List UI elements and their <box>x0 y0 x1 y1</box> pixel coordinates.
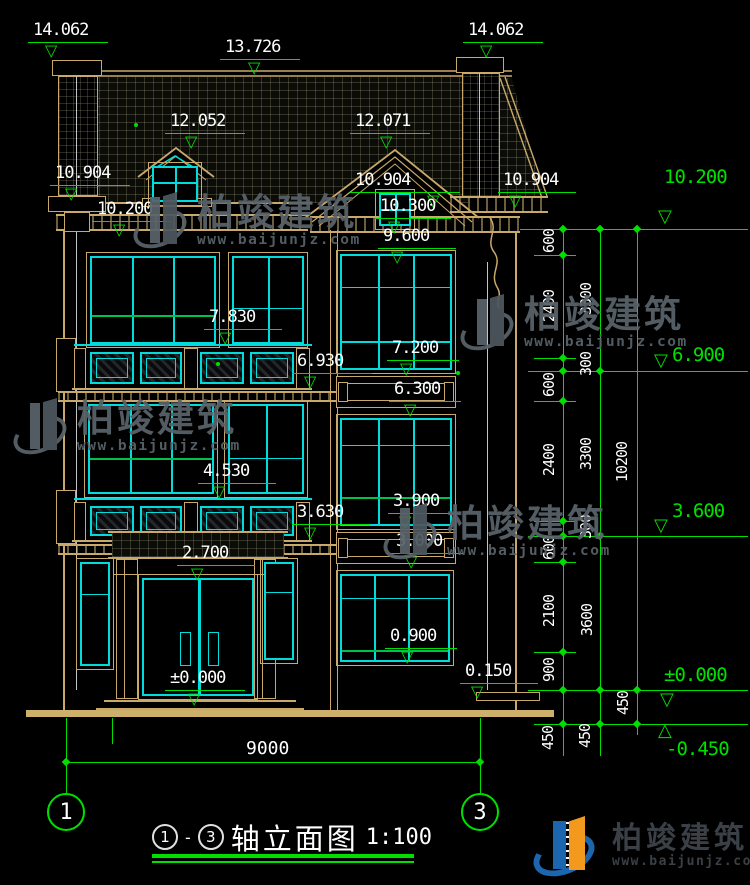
level-mark: 0.150▽ <box>465 661 511 681</box>
dim-value: 3600 <box>578 585 596 655</box>
level-mark: 10.904▽ <box>503 170 558 190</box>
dim-value: 900 <box>540 635 558 705</box>
level-mark: 0.900▽ <box>390 626 436 646</box>
watermark: 柏竣建筑www.baijunjz.com <box>135 192 361 250</box>
axis-bubble-1: 1 <box>47 793 85 831</box>
dim-value: 450 <box>576 701 594 771</box>
level-mark: 12.052▽ <box>170 111 225 131</box>
wall-left-edge <box>63 230 65 712</box>
door-handle-left <box>180 632 191 666</box>
dim-value: 3300 <box>577 419 595 489</box>
f3-window-mid <box>232 256 304 344</box>
wing-base-step <box>476 692 540 701</box>
level-mark: 6.930▽ <box>297 351 343 371</box>
elevation-mark: 3.600 <box>672 500 724 523</box>
level-mark: 12.071▽ <box>355 111 410 131</box>
level-mark: ±0.000▽ <box>170 668 225 688</box>
watermark-logo-icon <box>385 503 439 561</box>
level-mark: 4.530▽ <box>203 461 249 481</box>
level-mark: 7.830▽ <box>209 307 255 327</box>
watermark-logo-icon <box>462 294 516 352</box>
dim-value: 2400 <box>540 425 558 495</box>
title-scale: 1:100 <box>366 825 432 850</box>
watermark-logo-icon <box>15 398 69 456</box>
snap-dot <box>216 362 220 366</box>
snap-dot <box>134 123 138 127</box>
f3-window-left <box>90 256 216 344</box>
level-mark: 2.700▽ <box>182 543 228 563</box>
level-mark: 10.904▽ <box>355 170 410 190</box>
level-mark: 3.630▽ <box>297 502 343 522</box>
overall-width-dim: 9000 <box>246 738 289 759</box>
overall-width-dim-line <box>66 762 480 763</box>
dim-value: 600 <box>540 350 558 420</box>
elevation-mark: -0.450 <box>666 738 729 761</box>
level-mark: 13.726▽ <box>225 37 280 57</box>
snap-dot <box>456 371 460 375</box>
axis-bubble-3: 3 <box>461 793 499 831</box>
drawing-title: 1 - 3 轴立面图 1:100 <box>152 816 432 858</box>
level-mark: 9.600▽ <box>383 226 429 246</box>
level-mark: 10.904▽ <box>55 163 110 183</box>
watermark: 柏竣建筑www.baijunjz.com <box>462 294 688 352</box>
level-mark: 7.200▽ <box>392 338 438 358</box>
f1-window-mid-narrow <box>264 562 294 660</box>
level-mark: 14.062▽ <box>33 20 88 40</box>
f1-window-left-narrow <box>80 562 110 666</box>
dim-value: 450 <box>614 668 632 738</box>
watermark: 柏竣建筑www.baijunjz.com <box>15 398 241 456</box>
title-axis-start: 1 <box>152 824 178 850</box>
dim-value: 600 <box>540 206 558 276</box>
level-mark: 10.300▽ <box>380 196 435 216</box>
title-text: 轴立面图 <box>231 816 359 858</box>
dim-value: 10200 <box>613 427 631 497</box>
elevation-mark: 10.200 <box>664 166 727 189</box>
ground-line <box>26 710 554 717</box>
cad-elevation-drawing: 14.062▽ 13.726▽ 14.062▽ 12.052▽ 12.071▽ … <box>0 0 750 885</box>
door-pilaster-left <box>116 559 138 699</box>
elevation-mark: ±0.000 <box>664 664 727 687</box>
dim-value: 450 <box>539 703 557 773</box>
title-axis-end: 3 <box>198 824 224 850</box>
watermark: 柏竣建筑www.baijunjz.com <box>385 503 611 561</box>
level-mark: 14.062▽ <box>468 20 523 40</box>
eave-right <box>450 196 548 213</box>
door-handle-right <box>208 632 219 666</box>
watermark-logo-icon <box>135 192 189 250</box>
company-logo-icon <box>532 814 602 878</box>
company-logo: 柏竣建筑www.baijunjz.com <box>532 814 750 878</box>
level-mark: 6.300▽ <box>394 379 440 399</box>
